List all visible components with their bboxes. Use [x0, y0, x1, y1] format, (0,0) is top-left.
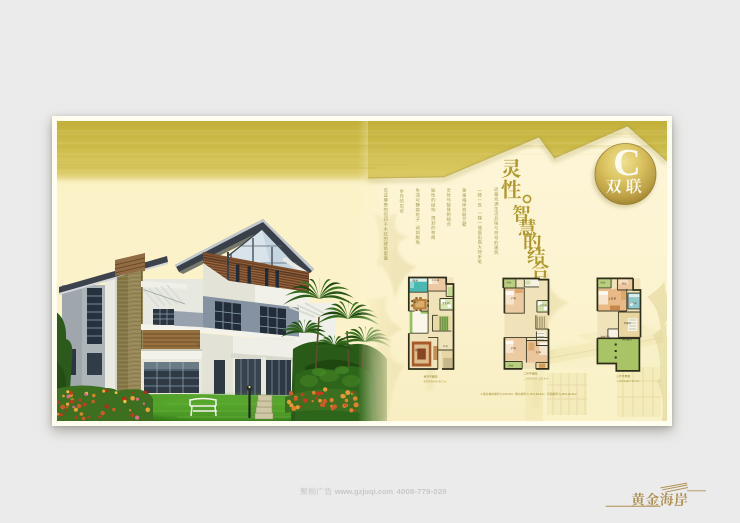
svg-text::96.3m²: :96.3m² — [631, 379, 640, 383]
svg-text:18.6-20.6m²: 18.6-20.6m² — [562, 392, 577, 396]
svg-text:C: C — [613, 142, 640, 184]
svg-text:www.gzjuqi.com: www.gzjuqi.com — [334, 487, 394, 496]
svg-text:135.9m²: 135.9m² — [503, 392, 513, 396]
svg-text:4008-779-020: 4008-779-020 — [397, 487, 447, 496]
svg-text:78.2-84.9m²: 78.2-84.9m² — [530, 392, 545, 396]
svg-text::86.7m²: :86.7m² — [438, 379, 447, 383]
svg-text:C: C — [481, 392, 483, 396]
svg-text::106.9m²: :106.9m² — [538, 376, 548, 380]
